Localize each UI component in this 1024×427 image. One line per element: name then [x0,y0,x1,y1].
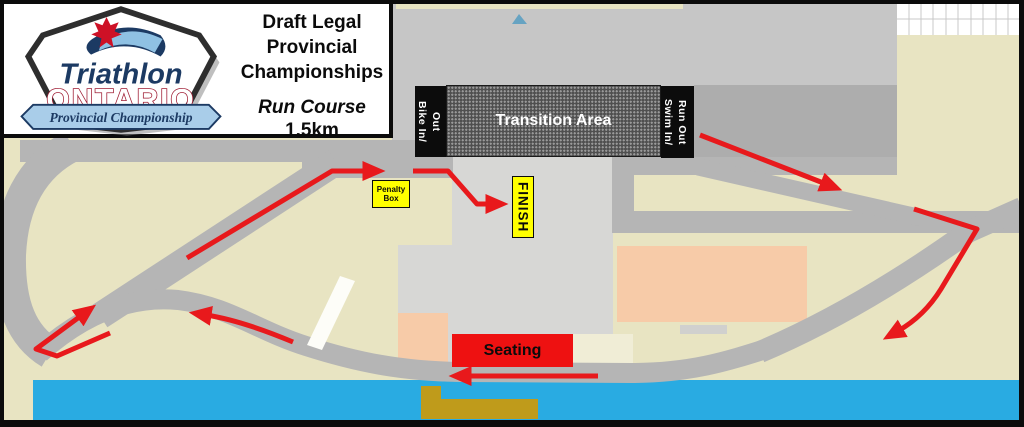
swim-in-run-out-box: Swim In/ Run Out [661,86,694,158]
triathlon-ontario-logo: Triathlon ONTARIO Provincial Championshi… [10,6,232,136]
seating-label: Seating [484,342,542,360]
course-distance: 1.5km [232,119,392,142]
run-course-map: Bike In/ Out Transition Area Swim In/ Ru… [0,0,1024,427]
event-title-line1: Draft Legal [232,10,392,35]
transition-area-box: Transition Area [446,85,661,157]
penalty-box-label-line2: Box [383,194,398,204]
event-title-line2: Provincial [232,35,392,60]
parking-grid [897,4,1020,35]
course-label: Run Course [232,96,392,119]
event-title-line3: Championships [232,60,392,85]
cream-building [573,334,633,367]
logo-banner-text: Provincial Championship [50,110,193,125]
bike-in-out-label-line1: Bike In/ [415,86,429,157]
swim-in-run-out-label-line1: Swim In/ [661,86,675,158]
transition-area-label: Transition Area [496,112,612,130]
finish-line-marker: FINISH [512,176,534,238]
swim-in-run-out-label-line2: Run Out [675,86,689,158]
penalty-box-label-line1: Penalty [377,185,405,195]
course-info: Run Course 1.5km [232,96,392,142]
seating-area: Seating [452,334,573,367]
finish-label: FINISH [516,182,531,232]
bike-in-out-label-line2: Out [429,86,443,157]
title-legend-box: Triathlon ONTARIO Provincial Championshi… [0,0,393,138]
event-title: Draft Legal Provincial Championships [232,10,392,85]
bike-in-out-box: Bike In/ Out [415,86,446,157]
pier-strip [680,325,727,334]
penalty-box-marker: Penalty Box [372,180,410,208]
